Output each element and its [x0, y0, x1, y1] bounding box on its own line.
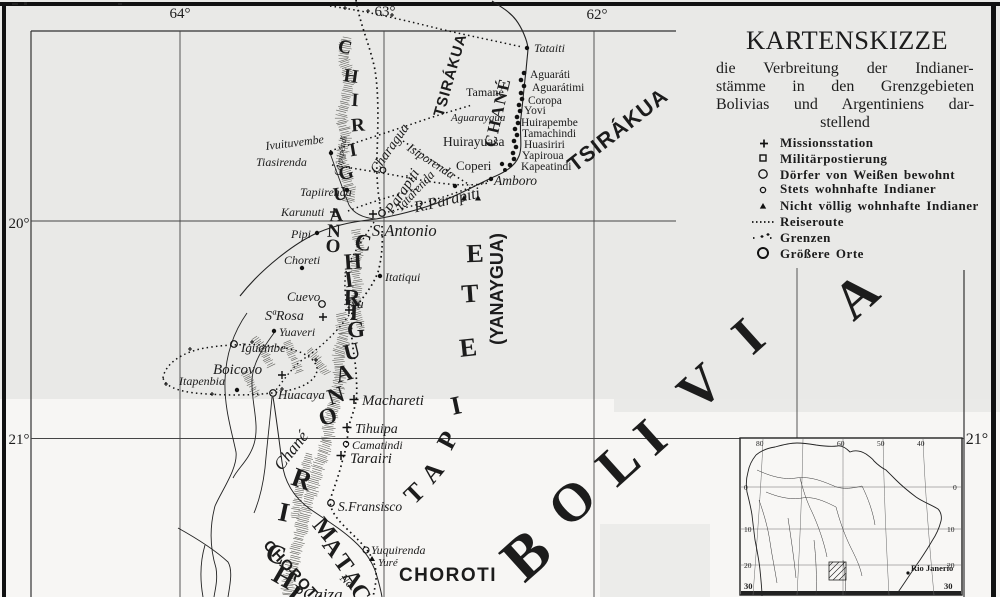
svg-text:Aguarátimi: Aguarátimi	[532, 82, 584, 94]
svg-text:Grenzen: Grenzen	[780, 230, 831, 245]
svg-text:30: 30	[744, 581, 753, 591]
svg-text:S.Antonio: S.Antonio	[372, 221, 437, 240]
svg-text:H: H	[342, 65, 360, 88]
svg-text:Nicht völlig wohnhafte Indiane: Nicht völlig wohnhafte Indianer	[780, 198, 979, 213]
svg-text:Tataiti: Tataiti	[534, 41, 565, 55]
svg-text:T: T	[460, 278, 479, 308]
svg-text:Größere Orte: Größere Orte	[780, 246, 864, 261]
svg-text:Caiza: Caiza	[303, 585, 343, 597]
svg-text:Ivu: Ivu	[346, 296, 364, 311]
svg-text:Karunuti: Karunuti	[280, 205, 324, 219]
svg-text:Tarairi: Tarairi	[350, 451, 392, 467]
svg-text:KARTENSKIZZE: KARTENSKIZZE	[746, 25, 948, 55]
svg-text:Choreti: Choreti	[284, 253, 320, 267]
svg-text:Rio Janerio: Rio Janerio	[911, 563, 953, 573]
svg-text:20°: 20°	[9, 216, 30, 232]
svg-text:20: 20	[744, 561, 752, 570]
svg-text:Yuré: Yuré	[378, 557, 399, 569]
svg-text:Bolivias und Argentiniens dar-: Bolivias und Argentiniens dar-	[716, 96, 974, 113]
svg-text:E: E	[458, 332, 478, 363]
svg-text:Missionsstation: Missionsstation	[780, 135, 874, 150]
svg-text:Amboro: Amboro	[493, 173, 537, 188]
svg-text:Tapiirenda: Tapiirenda	[300, 185, 352, 199]
svg-text:CHOROTI: CHOROTI	[399, 565, 497, 586]
svg-text:E: E	[466, 239, 484, 269]
svg-text:O: O	[325, 236, 341, 258]
svg-text:Dörfer von Weißen bewohnt: Dörfer von Weißen bewohnt	[780, 167, 955, 182]
svg-text:S.Fransisco: S.Fransisco	[338, 499, 402, 514]
svg-text:stämme in den Grenzgebieten: stämme in den Grenzgebieten	[716, 78, 974, 95]
svg-text:Stets wohnhafte Indianer: Stets wohnhafte Indianer	[780, 181, 936, 196]
svg-text:SªRosa: SªRosa	[265, 309, 304, 324]
svg-text:Reiseroute: Reiseroute	[780, 214, 844, 229]
svg-text:0: 0	[953, 483, 957, 492]
svg-text:Machareti: Machareti	[361, 393, 424, 409]
svg-text:62°: 62°	[587, 7, 608, 23]
svg-text:I: I	[351, 90, 360, 111]
svg-text:10: 10	[744, 525, 752, 534]
svg-text:Camatindi: Camatindi	[352, 438, 403, 452]
svg-text:Tihuipa: Tihuipa	[355, 422, 398, 437]
svg-text:21°: 21°	[9, 432, 30, 448]
svg-text:50: 50	[877, 439, 885, 448]
svg-text:64°: 64°	[170, 6, 191, 22]
svg-text:Yuaveri: Yuaveri	[279, 325, 315, 339]
svg-text:Aguaráti: Aguaráti	[530, 69, 570, 81]
svg-text:Tamané: Tamané	[466, 85, 504, 99]
svg-text:Itatiqui: Itatiqui	[384, 270, 420, 284]
svg-text:R: R	[350, 115, 365, 137]
svg-text:(YANAYGUA): (YANAYGUA)	[487, 233, 507, 345]
svg-text:Militärpostierung: Militärpostierung	[780, 151, 887, 166]
svg-text:Itapenbia: Itapenbia	[178, 374, 225, 388]
svg-text:Cuevo: Cuevo	[287, 289, 321, 304]
svg-text:Huacaya: Huacaya	[277, 387, 325, 402]
svg-text:Aguaraygua: Aguaraygua	[450, 112, 506, 124]
svg-text:stellend: stellend	[820, 114, 870, 131]
svg-text:Pipi: Pipi	[290, 227, 311, 241]
svg-text:Yovi: Yovi	[524, 105, 546, 117]
svg-text:80: 80	[756, 439, 764, 448]
svg-text:Huirayuasa: Huirayuasa	[443, 134, 504, 149]
svg-text:10: 10	[947, 525, 955, 534]
svg-text:Tiasirenda: Tiasirenda	[256, 155, 307, 169]
svg-text:30: 30	[944, 581, 953, 591]
svg-text:63°: 63°	[375, 4, 396, 20]
svg-text:21°: 21°	[966, 431, 988, 448]
svg-text:40: 40	[917, 439, 925, 448]
svg-text:die Verbreitung der Indianer-: die Verbreitung der Indianer-	[716, 60, 974, 77]
svg-text:Coperi: Coperi	[456, 158, 492, 173]
svg-text:Iguembe: Iguembe	[240, 340, 286, 355]
svg-text:Yuquirenda: Yuquirenda	[371, 543, 425, 557]
svg-text:Kapeatindi: Kapeatindi	[521, 161, 571, 173]
